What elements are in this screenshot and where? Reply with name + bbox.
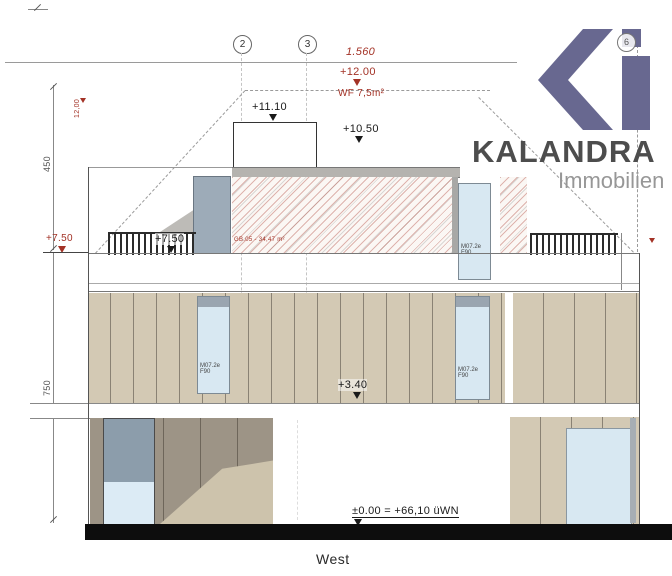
penthouse-terrace-door bbox=[193, 176, 231, 254]
window-ground-left bbox=[103, 418, 155, 525]
level-line-terrace bbox=[43, 252, 88, 253]
dimension-line-450 bbox=[53, 85, 54, 250]
elevation-drawing-west: 1.560 2 3 +12.00 WF 7,5m² 450 12,00 +7.5… bbox=[0, 0, 672, 576]
level-terrace-black: +7.50 bbox=[155, 233, 184, 245]
level-marker-ridge bbox=[353, 79, 361, 86]
parapet-top-line bbox=[88, 253, 640, 254]
window-tag: M07.2eF90 bbox=[200, 363, 220, 375]
terrace-area-label: GB.05 - 34,47 m² bbox=[234, 237, 285, 243]
marker-roof bbox=[355, 136, 363, 143]
window-middle-right: M07.2eF90 bbox=[455, 296, 490, 400]
logo-bar bbox=[622, 56, 650, 130]
terrace-railing-right bbox=[530, 233, 618, 255]
penthouse-wall-hatch-right bbox=[500, 177, 527, 253]
parapet-mid-line bbox=[88, 283, 640, 284]
marker-ridge-left bbox=[80, 98, 86, 103]
dimension-750: 750 bbox=[42, 380, 52, 396]
level-roof: +10.50 bbox=[343, 123, 379, 135]
brand-subtitle: Immobilien bbox=[558, 168, 664, 194]
roof-area-label: WF 7,5m² bbox=[338, 88, 384, 99]
brand-name: KALANDRA bbox=[472, 134, 656, 170]
window-tag: M07.2eF90 bbox=[458, 367, 478, 379]
dimension-mark bbox=[28, 9, 48, 10]
penthouse-window: M07.2eF90 bbox=[458, 183, 491, 280]
marker-right-red bbox=[649, 238, 655, 243]
marker-stair-overrun bbox=[269, 114, 277, 121]
stair-overrun-box bbox=[233, 122, 317, 170]
view-title: West bbox=[316, 551, 350, 567]
level-stair-overrun: +11.10 bbox=[252, 101, 287, 113]
level-terrace-red: +7.50 bbox=[46, 233, 73, 244]
grid-bubble-3: 3 bbox=[298, 35, 317, 54]
window-middle-left: M07.2eF90 bbox=[197, 296, 230, 394]
marker-floor1 bbox=[353, 392, 361, 399]
penthouse-back-edge bbox=[88, 167, 232, 168]
building-edge-left bbox=[88, 167, 89, 524]
dimension-line-top bbox=[5, 62, 517, 63]
ground-line bbox=[85, 524, 672, 540]
grid-bubble-2: 2 bbox=[233, 35, 252, 54]
window-tag: M07.2eF90 bbox=[461, 244, 481, 256]
window-frame-right bbox=[630, 418, 636, 523]
building-edge-right bbox=[639, 253, 640, 524]
level-floor1: +3.40 bbox=[338, 379, 367, 391]
window-ground-right bbox=[566, 428, 632, 525]
dimension-450: 450 bbox=[42, 156, 52, 172]
hidden-edge-dashed bbox=[297, 420, 298, 520]
dimension-line-750 bbox=[53, 253, 54, 523]
level-ridge-red: +12.00 bbox=[340, 66, 376, 78]
logo-chevron bbox=[538, 29, 613, 130]
edge-line-right-terrace bbox=[621, 233, 622, 290]
grid-bubble-6: 6 bbox=[617, 33, 636, 52]
cladding-middle-left bbox=[88, 293, 505, 403]
kalandra-logo-mark bbox=[525, 25, 665, 140]
cladding-middle-right bbox=[513, 293, 640, 403]
slab-line bbox=[88, 291, 640, 292]
dimension-top-width: 1.560 bbox=[346, 46, 375, 58]
level-ground: ±0.00 = +66,10 üWN bbox=[352, 505, 459, 518]
marker-terrace-black bbox=[167, 246, 175, 253]
